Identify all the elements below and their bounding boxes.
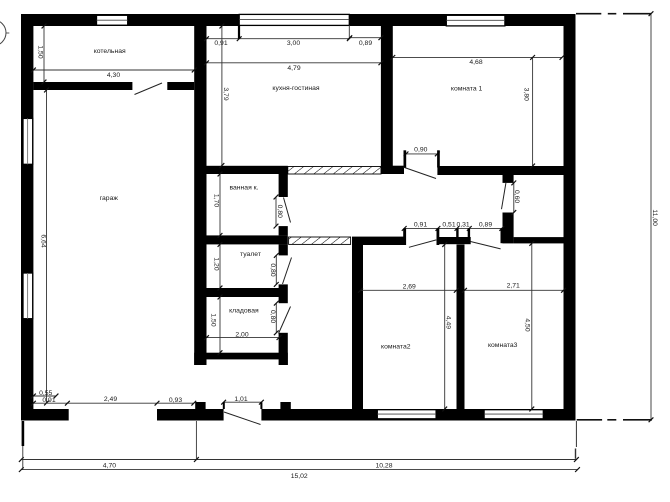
svg-text:0,55: 0,55 — [39, 390, 52, 397]
svg-text:1,50: 1,50 — [210, 313, 217, 326]
svg-text:комната3: комната3 — [488, 342, 518, 349]
svg-text:0,93: 0,93 — [169, 397, 182, 404]
svg-text:15,02: 15,02 — [291, 473, 308, 480]
svg-text:0,80: 0,80 — [276, 205, 283, 218]
svg-text:2,00: 2,00 — [235, 332, 248, 339]
svg-text:0,51: 0,51 — [442, 222, 455, 229]
svg-text:4,70: 4,70 — [103, 462, 116, 469]
svg-text:комната 1: комната 1 — [451, 86, 483, 93]
svg-text:3,79: 3,79 — [222, 87, 229, 100]
svg-text:ванная к.: ванная к. — [229, 184, 258, 191]
svg-text:4,30: 4,30 — [107, 72, 120, 79]
svg-text:2,71: 2,71 — [507, 283, 520, 290]
svg-text:0,31: 0,31 — [456, 222, 469, 229]
svg-text:0,90: 0,90 — [414, 146, 427, 153]
svg-text:2,49: 2,49 — [104, 396, 117, 403]
svg-text:гараж: гараж — [100, 195, 119, 202]
svg-text:1,70: 1,70 — [213, 194, 220, 207]
svg-text:0,80: 0,80 — [269, 310, 276, 323]
svg-text:0,91: 0,91 — [214, 40, 227, 47]
svg-text:кладовая: кладовая — [229, 308, 259, 315]
svg-text:6,64: 6,64 — [39, 234, 46, 247]
svg-text:котельная: котельная — [94, 48, 126, 55]
svg-text:3,00: 3,00 — [287, 40, 300, 47]
svg-text:10,28: 10,28 — [375, 463, 392, 470]
svg-text:0,80: 0,80 — [269, 263, 276, 276]
svg-text:1,20: 1,20 — [213, 257, 220, 270]
svg-text:0,89: 0,89 — [479, 222, 492, 229]
svg-text:1,01: 1,01 — [234, 396, 247, 403]
svg-text:4,49: 4,49 — [445, 316, 452, 329]
svg-text:4,68: 4,68 — [469, 59, 482, 66]
svg-text:11,00: 11,00 — [651, 209, 658, 226]
svg-text:туалет: туалет — [240, 251, 261, 258]
svg-text:1,50: 1,50 — [36, 45, 43, 58]
svg-text:0,89: 0,89 — [359, 40, 372, 47]
svg-text:0,91: 0,91 — [414, 222, 427, 229]
svg-text:2,69: 2,69 — [403, 283, 416, 290]
svg-text:0,60: 0,60 — [513, 190, 520, 203]
svg-text:3,80: 3,80 — [523, 88, 530, 101]
svg-text:4,79: 4,79 — [287, 65, 300, 72]
svg-text:4,50: 4,50 — [524, 318, 531, 331]
svg-text:0,91: 0,91 — [42, 397, 55, 404]
svg-text:комната2: комната2 — [381, 344, 411, 351]
svg-text:кухня-гостиная: кухня-гостиная — [272, 85, 319, 92]
